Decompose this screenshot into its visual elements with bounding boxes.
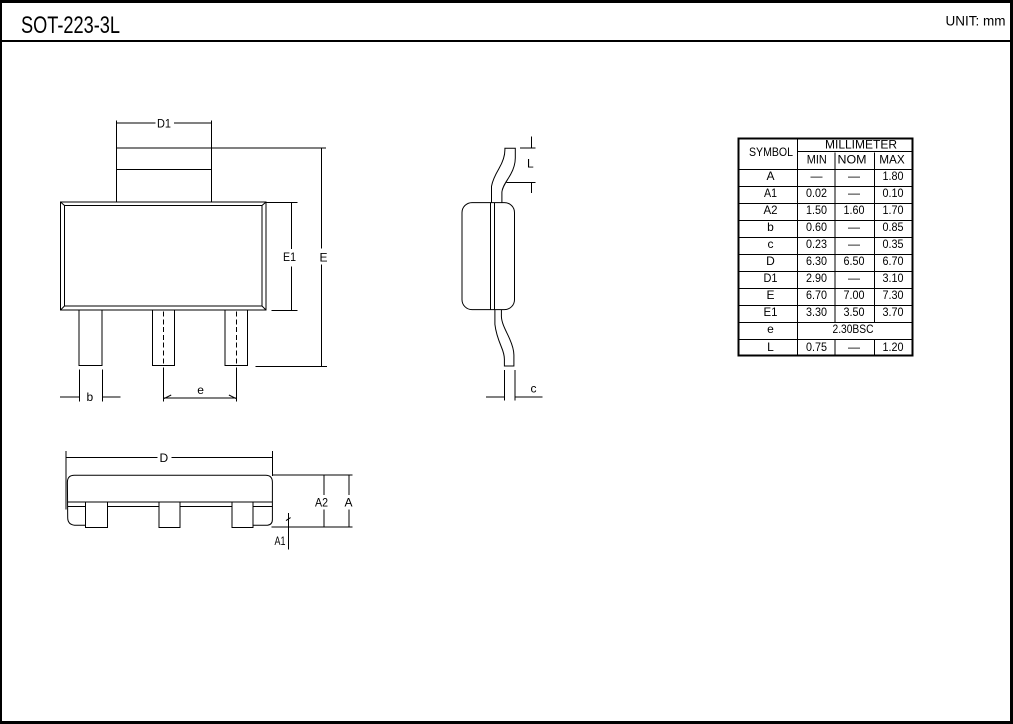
svg-text:—: —: [848, 169, 860, 183]
svg-text:E: E: [320, 251, 328, 265]
svg-text:2.30BSC: 2.30BSC: [833, 322, 874, 336]
svg-text:A1: A1: [764, 186, 777, 200]
svg-text:0.10: 0.10: [883, 186, 904, 200]
svg-text:D1: D1: [157, 116, 171, 130]
svg-text:NOM: NOM: [838, 152, 867, 166]
svg-text:E1: E1: [283, 250, 296, 264]
svg-text:3.50: 3.50: [844, 305, 865, 319]
svg-text:3.10: 3.10: [883, 271, 904, 285]
svg-text:c: c: [531, 381, 537, 395]
svg-text:A: A: [766, 169, 774, 183]
svg-text:7.00: 7.00: [844, 288, 865, 302]
svg-text:D: D: [766, 254, 775, 268]
svg-text:E1: E1: [764, 305, 778, 319]
svg-text:1.50: 1.50: [806, 203, 827, 217]
svg-text:A1: A1: [275, 534, 286, 548]
svg-text:D: D: [160, 451, 169, 465]
svg-text:—: —: [848, 186, 860, 200]
svg-text:—: —: [848, 340, 860, 354]
svg-text:0.02: 0.02: [806, 186, 827, 200]
svg-text:1.60: 1.60: [844, 203, 865, 217]
svg-text:E: E: [766, 288, 774, 302]
svg-text:SYMBOL: SYMBOL: [749, 145, 793, 159]
svg-text:—: —: [848, 237, 860, 251]
svg-text:0.75: 0.75: [806, 340, 827, 354]
svg-text:—: —: [848, 220, 860, 234]
svg-text:b: b: [87, 390, 94, 404]
svg-text:—: —: [811, 169, 823, 183]
svg-text:6.30: 6.30: [806, 254, 827, 268]
svg-text:1.20: 1.20: [883, 340, 904, 354]
svg-text:6.70: 6.70: [806, 288, 827, 302]
svg-text:b: b: [767, 220, 774, 234]
svg-text:6.50: 6.50: [844, 254, 865, 268]
svg-text:D1: D1: [764, 271, 778, 285]
svg-text:L: L: [767, 340, 774, 354]
svg-text:MAX: MAX: [879, 152, 905, 166]
svg-text:UNIT: mm: UNIT: mm: [946, 14, 1006, 29]
svg-text:MILLIMETER: MILLIMETER: [825, 137, 897, 151]
svg-text:0.85: 0.85: [883, 220, 904, 234]
svg-text:c: c: [768, 237, 774, 251]
svg-text:6.70: 6.70: [883, 254, 904, 268]
svg-text:A2: A2: [764, 203, 778, 217]
svg-text:1.70: 1.70: [883, 203, 904, 217]
svg-text:A: A: [345, 496, 353, 510]
svg-text:2.90: 2.90: [806, 271, 827, 285]
svg-text:0.60: 0.60: [806, 220, 827, 234]
svg-text:—: —: [848, 271, 860, 285]
svg-text:A2: A2: [315, 496, 328, 510]
svg-text:L: L: [527, 156, 534, 170]
svg-text:0.23: 0.23: [806, 237, 827, 251]
svg-text:e: e: [197, 383, 204, 397]
svg-text:e: e: [767, 322, 774, 336]
svg-text:7.30: 7.30: [883, 288, 904, 302]
svg-text:1.80: 1.80: [883, 169, 904, 183]
svg-text:0.35: 0.35: [883, 237, 904, 251]
svg-text:MIN: MIN: [807, 152, 827, 166]
svg-text:3.70: 3.70: [883, 305, 904, 319]
svg-text:SOT-223-3L: SOT-223-3L: [21, 12, 120, 39]
svg-text:3.30: 3.30: [806, 305, 827, 319]
